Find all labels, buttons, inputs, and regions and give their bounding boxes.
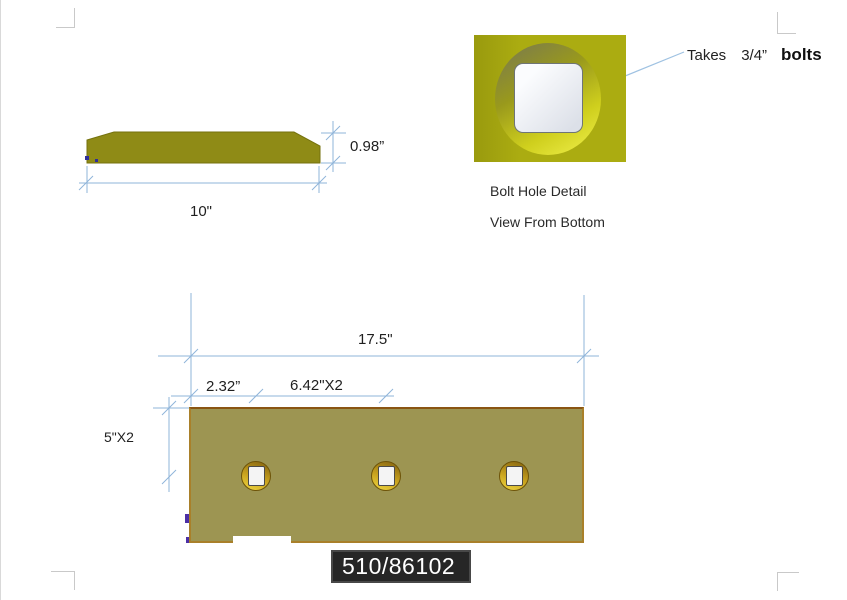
bolt-note-takes: Takes [687,47,726,64]
page-margin-mark-top-right [777,12,796,34]
dim-tick [184,389,198,403]
page-margin-mark-bottom-right [777,572,799,591]
dim-tick [326,156,340,170]
dim-tick [577,349,591,363]
dim-tick [162,470,176,484]
bolt-hole-square [506,466,523,486]
bolt-hole-square [378,466,395,486]
anchor-marker [186,537,189,543]
dim-tick [326,126,340,140]
bolt-note: Takes 3/4” bolts [687,45,822,65]
vertex-marker [95,159,98,162]
page-margin-mark-bottom-left [51,571,75,590]
dim-tick [79,176,93,190]
bolt-hole-square [248,466,265,486]
dim-tick [379,389,393,403]
side-profile-shape [87,132,320,163]
detail-caption-title: Bolt Hole Detail [490,183,587,199]
bolt-note-size: 3/4” [741,47,767,64]
page-margin-mark-top-left [56,8,75,28]
bolt-hole-square-opening [514,63,583,133]
dim-label-hole-spacing: 6.42"X2 [290,377,343,394]
dim-label-edge-offset: 2.32” [206,378,240,395]
drawing-page: 0.98” 10" Takes 3/4” bolts Bolt Hole Det… [0,0,847,600]
bolt-hole [499,461,529,491]
anchor-marker [185,514,189,523]
bolt-note-bolts: bolts [781,45,822,65]
dim-label-thickness: 0.98” [350,138,384,155]
dim-tick [312,176,326,190]
dim-tick [184,349,198,363]
bolt-hole [241,461,271,491]
dim-label-plate-width: 5"X2 [104,429,134,445]
dim-tick [249,389,263,403]
detail-caption-view: View From Bottom [490,214,605,230]
bolt-hole [371,461,401,491]
plate-edge-notch [233,536,291,545]
dim-tick [162,401,176,415]
dim-label-length: 17.5" [358,331,393,348]
part-number-label: 510/86102 [331,550,471,583]
dim-label-width-10: 10" [190,203,212,220]
vertex-marker [85,156,89,160]
